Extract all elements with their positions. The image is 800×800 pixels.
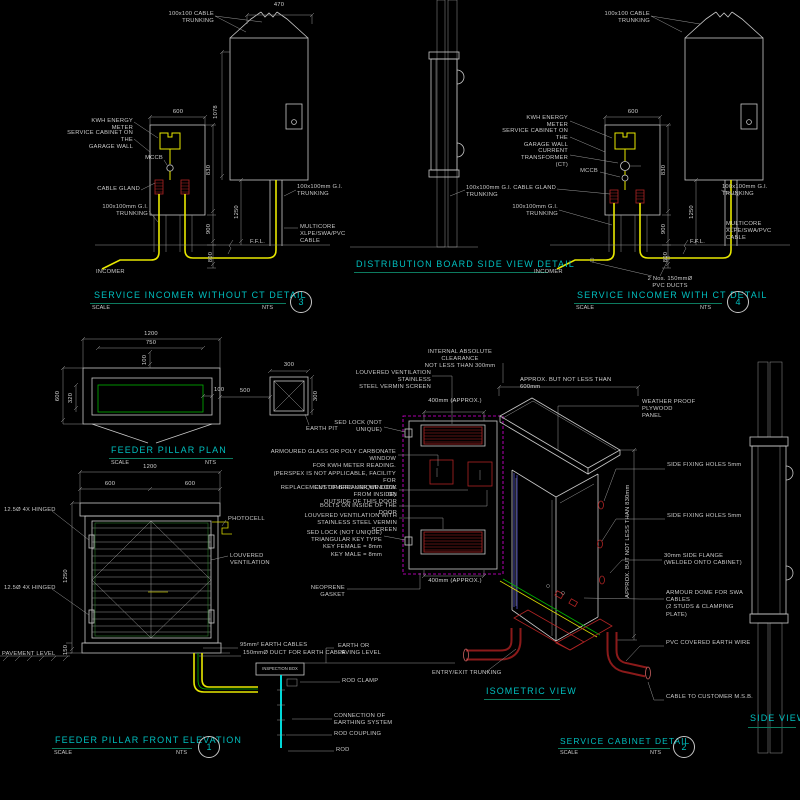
label-cable-gland-a: CABLE GLAND: [90, 186, 140, 193]
title-underline-b: [354, 272, 548, 273]
label-incomer-a: INCOMER: [96, 269, 125, 276]
dim-plan-750: 750: [136, 340, 166, 347]
scale-value-plan: NTS: [205, 460, 216, 466]
dim-pit-300-top: 300: [275, 362, 303, 369]
dim-900-c: 900: [661, 214, 668, 244]
title-incomer-without-ct: SERVICE INCOMER WITHOUT CT DETAIL: [94, 290, 307, 300]
title-underline-elev: [52, 748, 192, 749]
dim-600-c: 600: [618, 109, 648, 116]
label-cable-to-msb: CABLE TO CUSTOMER M.S.B.: [666, 694, 753, 701]
label-multicore-c: MULTICORE XLPE/SWA/PVC CABLE: [726, 221, 798, 243]
dim-plan-100-right: 100: [214, 387, 224, 394]
dim-plan-1200: 1200: [136, 331, 166, 338]
label-pvc-ducts: 2 Nos. 150mmØ PVC DUCTS: [640, 276, 700, 290]
dim-plan-500: 500: [233, 388, 257, 395]
label-gi-trunking-c-left: 100x100mm G.I. TRUNKING: [498, 204, 558, 218]
dim-800-c: 800: [663, 245, 670, 269]
scale-label-c: SCALE: [576, 305, 594, 311]
scale-label-det2: SCALE: [560, 750, 578, 756]
dim-1078: 1078: [213, 92, 220, 132]
title-underline-plan: [109, 458, 233, 459]
label-rod: ROD: [336, 747, 349, 754]
label-photocell: PHOTOCELL: [228, 516, 265, 523]
dim-approx-830: APPROX. BUT NOT LESS THAN 830mm: [625, 492, 632, 598]
label-pvc-earth-wire: PVC COVERED EARTH WIRE: [666, 640, 751, 647]
label-earthing-connection: CONNECTION OF EARTHING SYSTEM: [334, 713, 394, 727]
title-service-cabinet-detail: SERVICE CABINET DETAIL: [560, 736, 690, 746]
label-cable-trunking-a: 100x100 CABLE TRUNKING: [154, 11, 214, 25]
label-inspection-box: INSPECTION BOX: [256, 666, 304, 671]
dim-830-a: 830: [206, 155, 213, 185]
dim-elev-600-r: 600: [175, 481, 205, 488]
scale-label-a: SCALE: [92, 305, 110, 311]
scale-value-c: NTS: [700, 305, 711, 311]
detail-number-4: 4: [727, 291, 749, 313]
label-side-flange: 30mm SIDE FLANGE (WELDED ONTO CABINET): [664, 553, 744, 567]
detail-number-3: 3: [290, 291, 312, 313]
title-underline-det2: [558, 748, 670, 749]
dim-900-a: 900: [206, 214, 213, 244]
dim-470: 470: [265, 2, 293, 9]
label-weather-proof-panel: WEATHER PROOF PLYWOOD PANEL: [642, 399, 712, 421]
dim-800-a: 800: [208, 245, 215, 269]
label-louvered-ventilation: LOUVERED VENTILATION: [230, 553, 300, 567]
scale-label-elev: SCALE: [54, 750, 72, 756]
label-rod-clamp: ROD CLAMP: [342, 678, 378, 685]
title-side-view: SIDE VIEW: [750, 713, 800, 723]
label-gi-trunking-c-right: 100x100mm G.I. TRUNKING: [722, 184, 782, 198]
label-mccb-c: MCCB: [568, 168, 598, 175]
dim-elev-600-l: 600: [95, 481, 125, 488]
label-earth-duct: 150mmØ DUCT FOR EARTH CABLE: [243, 650, 345, 657]
label-rod-coupling: ROD COUPLING: [334, 731, 381, 738]
isometric-view-linework: [464, 385, 666, 700]
label-incomer-c: INCOMER: [534, 269, 563, 276]
title-feeder-pillar-plan: FEEDER PILLAR PLAN: [111, 445, 227, 455]
dim-pit-300-right: 300: [313, 384, 320, 408]
label-sed-lock-top: SED LOCK (NOT UNIQUE): [322, 420, 382, 434]
feeder-pillar-plan-linework: [61, 337, 314, 443]
label-hinged-top: 12.5Ø 4X HINGED: [4, 507, 56, 514]
dim-830-c: 830: [661, 155, 668, 185]
label-neoprene-gasket: NEOPRENE GASKET: [285, 585, 345, 599]
label-cabinet-wall-a: SERVICE CABINET ON THE GARAGE WALL: [63, 130, 133, 152]
title-underline-side: [748, 727, 796, 728]
title-isometric-view: ISOMETRIC VIEW: [486, 686, 577, 696]
label-cable-gland-c: CABLE GLAND: [506, 185, 556, 192]
dim-400-top: 400mm (APPROX.): [424, 398, 486, 405]
dim-1250-c: 1250: [689, 197, 696, 227]
cad-canvas: 100x100 CABLE TRUNKING 470 KWH ENERGY ME…: [0, 0, 800, 800]
label-side-fixing-holes-2: SIDE FIXING HOLES 5mm: [667, 513, 741, 520]
label-entry-exit-trunking: ENTRY/EXIT TRUNKING: [432, 670, 502, 677]
label-cable-trunking-c: 100x100 CABLE TRUNKING: [590, 11, 650, 25]
dim-plan-600: 600: [55, 381, 62, 411]
label-gi-trunking-a-right: 100x100mm G.I. TRUNKING: [297, 184, 357, 198]
dim-elev-1200: 1200: [133, 464, 167, 471]
title-underline-iso: [484, 699, 560, 700]
scale-label-plan: SCALE: [111, 460, 129, 466]
dim-approx-600: APPROX. BUT NOT LESS THAN 600mm: [520, 377, 630, 391]
title-underline-a: [90, 303, 286, 304]
scale-value-det2: NTS: [650, 750, 661, 756]
label-pavement-level: PAVEMENT LEVEL: [2, 651, 55, 658]
detail-number-1: 1: [198, 736, 220, 758]
scale-value-elev: NTS: [176, 750, 187, 756]
label-hinged-bottom: 12.5Ø 4X HINGED: [4, 585, 56, 592]
label-sed-lock-triangular: SED LOCK (NOT UNIQUE) TRIANGULAR KEY TYP…: [292, 530, 382, 559]
scale-value-a: NTS: [262, 305, 273, 311]
label-side-fixing-holes-1: SIDE FIXING HOLES 5mm: [667, 462, 741, 469]
dim-plan-100-center: 100: [142, 352, 149, 368]
title-underline-c: [574, 303, 722, 304]
label-armour-dome: ARMOUR DOME FOR SWA CABLES (2 STUDS & CL…: [666, 590, 751, 619]
dim-1250-a: 1250: [234, 197, 241, 227]
label-ffl-a: F.F.L.: [250, 239, 265, 246]
title-distribution-board: DISTRIBUTION BOARD SIDE VIEW DETAIL: [356, 259, 575, 269]
label-cabinet-wall-c: SERVICE CABINET ON THE GARAGE WALL: [498, 128, 568, 150]
dim-600-a: 600: [163, 109, 193, 116]
label-ffl-c: F.F.L.: [690, 239, 705, 246]
dim-elev-1250: 1250: [63, 561, 70, 591]
detail-number-2: 2: [673, 736, 695, 758]
dim-elev-150: 150: [63, 641, 70, 659]
label-current-transformer: CURRENT TRANSFORMER (CT): [498, 148, 568, 170]
label-internal-clearance: INTERNAL ABSOLUTE CLEARANCE NOT LESS THA…: [416, 349, 504, 371]
dim-400-bottom: 400mm (APPROX.): [424, 578, 486, 585]
label-mccb-a: MCCB: [133, 155, 163, 162]
dim-plan-320: 320: [68, 386, 75, 410]
distribution-board-linework: [350, 0, 478, 247]
side-view-linework: [750, 362, 793, 753]
label-earth-cables: 95mm² EARTH CABLES: [240, 642, 307, 649]
label-louver-top: LOUVERED VENTILATION STAINLESS STEEL VER…: [336, 370, 431, 392]
label-gi-trunking-a-left: 100x100mm G.I. TRUNKING: [88, 204, 148, 218]
label-earth-paving-level: EARTH OR PAVING LEVEL: [338, 643, 386, 657]
label-multicore-a: MULTICORE XLPE/SWA/PVC CABLE: [300, 224, 372, 246]
